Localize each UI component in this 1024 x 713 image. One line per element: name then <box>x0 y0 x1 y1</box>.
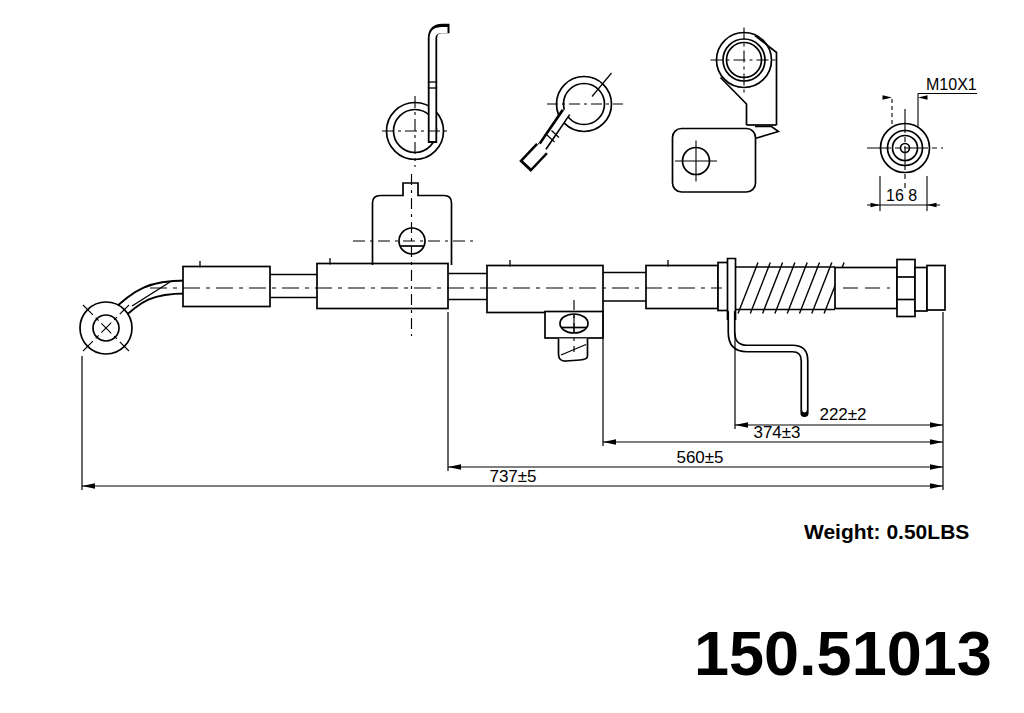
dimension-374-label: 374±3 <box>753 424 800 443</box>
dimension-222-label: 222±2 <box>819 406 866 425</box>
coil-spring-guard <box>736 263 844 314</box>
fitting-width-label: 16 8 <box>886 187 917 205</box>
centerlines <box>150 174 890 352</box>
dimension-737-label: 737±5 <box>489 468 536 487</box>
part-number: 150.51013 <box>694 619 992 688</box>
fitting-end-view <box>867 94 977 212</box>
j-hook-clip <box>382 29 451 168</box>
thread-spec-label: M10X1 <box>926 76 977 94</box>
banjo-fitting <box>80 282 186 354</box>
length-dimensions <box>82 312 943 490</box>
corner-bracket <box>673 28 779 193</box>
hose-assembly <box>80 174 945 413</box>
crimp-collars <box>183 258 718 313</box>
lower-bracket <box>545 312 603 362</box>
dimension-560-label: 560±5 <box>676 449 723 468</box>
hose-sections <box>270 273 646 302</box>
ring-clip <box>525 73 623 167</box>
weight-label: Weight: 0.50LBS <box>804 520 969 543</box>
technical-drawing <box>0 0 1024 713</box>
flange-and-rod <box>718 259 805 414</box>
thread-callout <box>883 94 978 129</box>
